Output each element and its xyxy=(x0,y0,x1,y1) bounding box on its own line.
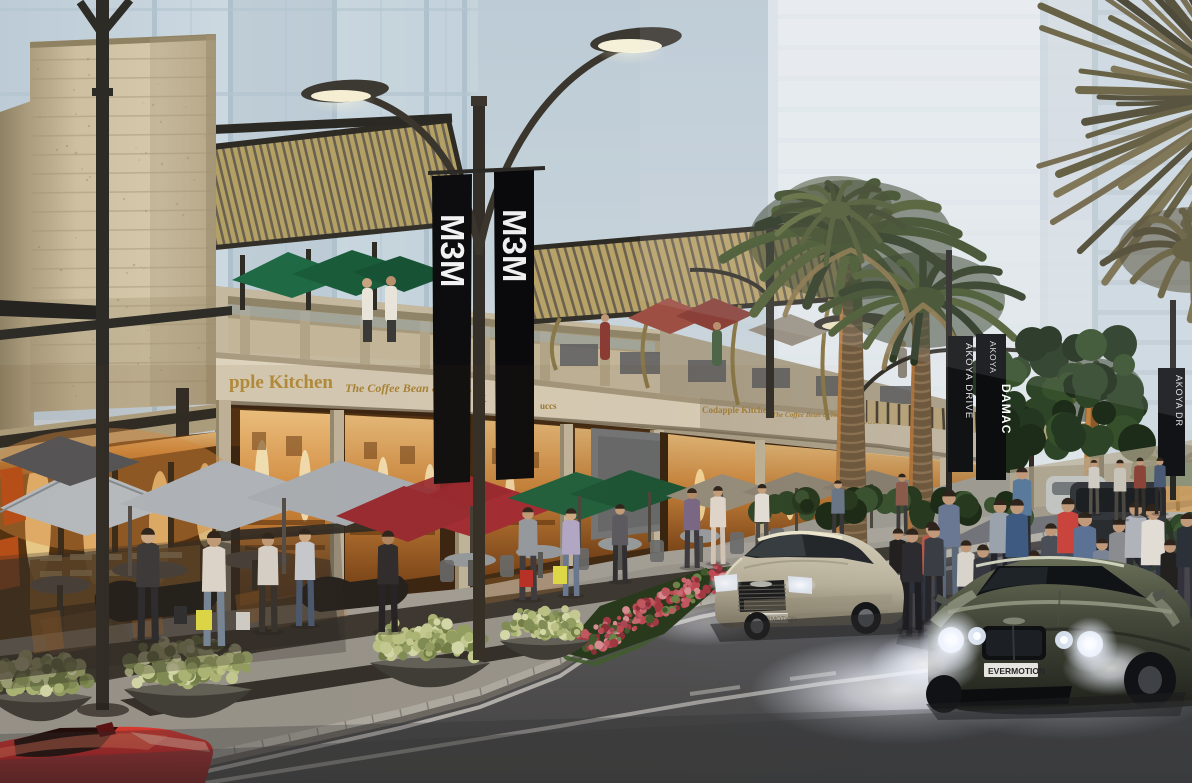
svg-text:EVERMOTION: EVERMOTION xyxy=(988,666,1045,676)
svg-text:DAMAC: DAMAC xyxy=(999,384,1013,435)
svg-text:M3M: M3M xyxy=(434,214,471,287)
svg-text:M3M: M3M xyxy=(496,209,533,282)
